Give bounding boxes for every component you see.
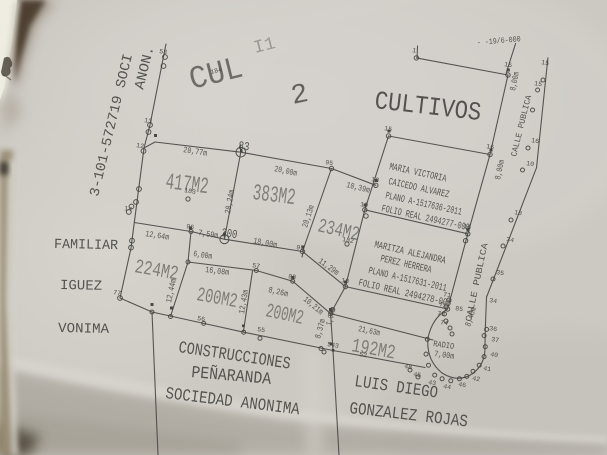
svg-text:10: 10 [360,201,369,209]
svg-text:74: 74 [440,319,449,327]
svg-text:42: 42 [472,375,481,383]
svg-text:55: 55 [257,326,266,334]
svg-text:15: 15 [504,61,513,69]
svg-text:34: 34 [506,236,515,244]
svg-text:97: 97 [296,244,305,252]
svg-text:37: 37 [491,336,500,344]
svg-text:16: 16 [486,143,495,151]
svg-text:15: 15 [384,125,393,133]
svg-text:18: 18 [371,176,380,184]
svg-text:18: 18 [341,277,350,285]
svg-text:57: 57 [252,262,261,270]
svg-text:43: 43 [428,379,437,387]
svg-text:48: 48 [404,363,413,371]
svg-text:73: 73 [437,310,446,318]
svg-text:77: 77 [113,289,122,297]
svg-text:96: 96 [186,223,195,231]
svg-text:53: 53 [159,48,168,56]
svg-text:71: 71 [443,291,452,299]
svg-text:13: 13 [144,117,153,125]
svg-text:FAMILIAR: FAMILIAR [54,237,119,254]
svg-text:95: 95 [325,159,334,167]
svg-text:VONIMA: VONIMA [58,321,110,338]
svg-text:46: 46 [458,381,467,389]
svg-text:34: 34 [489,297,498,305]
svg-text:44: 44 [443,383,452,391]
svg-text:417M2: 417M2 [164,169,210,200]
svg-text:35: 35 [496,269,505,277]
svg-text:88: 88 [288,273,297,281]
svg-text:83: 83 [237,139,250,154]
svg-text:45: 45 [413,371,422,379]
svg-text:52: 52 [359,351,368,359]
svg-text:36: 36 [489,325,498,333]
svg-text:383M2: 383M2 [251,180,297,211]
svg-text:18: 18 [514,209,523,217]
svg-text:56: 56 [197,315,206,323]
svg-text:200: 200 [220,226,238,242]
svg-text:40: 40 [490,351,499,359]
svg-text:12: 12 [136,142,145,150]
svg-text:85: 85 [455,305,464,313]
svg-text:16: 16 [531,137,540,145]
svg-text:16: 16 [463,223,472,231]
svg-text:15: 15 [541,59,550,67]
svg-text:10: 10 [526,160,535,168]
svg-text:14: 14 [124,205,133,213]
svg-text:15: 15 [534,80,543,88]
svg-text:IGUEZ: IGUEZ [60,278,102,295]
svg-text:41: 41 [483,365,492,373]
svg-text:72: 72 [439,301,448,309]
